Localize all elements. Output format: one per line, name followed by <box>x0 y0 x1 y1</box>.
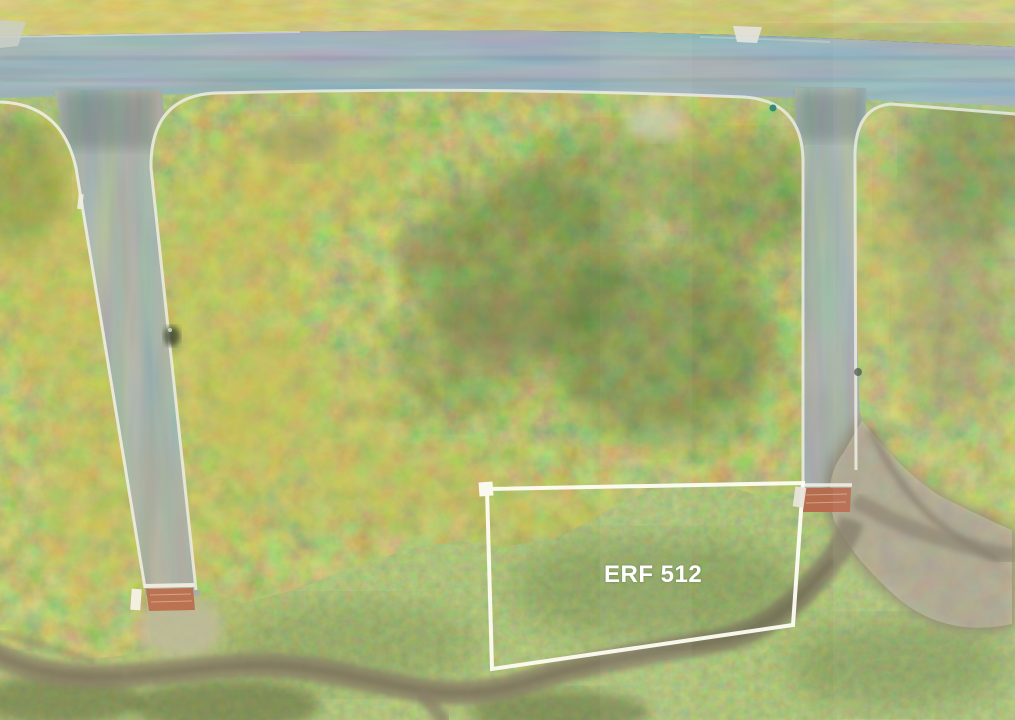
glare-overlays <box>0 0 1015 720</box>
aerial-photo-stage: ERF 512 <box>0 0 1015 720</box>
aerial-photo <box>0 0 1015 720</box>
plot-label: ERF 512 <box>604 561 702 589</box>
warm-light-overlay <box>0 0 1015 720</box>
